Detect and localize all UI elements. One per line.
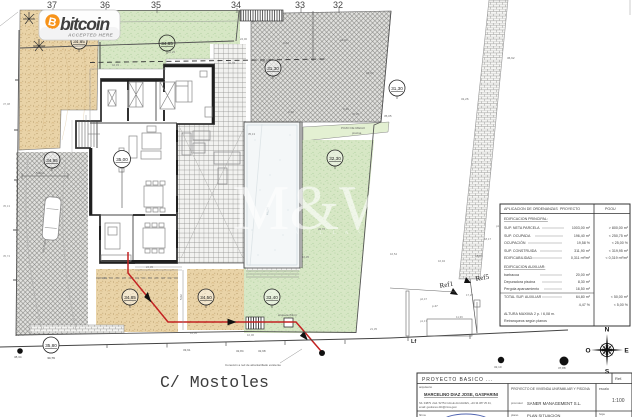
svg-text:35,13: 35,13 [3, 204, 10, 208]
svg-text:35: 35 [151, 0, 161, 10]
svg-text:< 319,95 m²: < 319,95 m² [609, 249, 629, 253]
svg-text:< 5,00 %: < 5,00 % [614, 303, 629, 307]
svg-text:PROYECTO BASICO ...: PROYECTO BASICO ... [422, 377, 493, 383]
svg-text:18,17: 18,17 [484, 237, 491, 241]
svg-text:3,40: 3,40 [343, 107, 349, 111]
svg-text:SUP. NETA PARCELA: SUP. NETA PARCELA [504, 226, 540, 230]
svg-text:email: gestiones.41b@ricos.ges: email: gestiones.41b@ricos.gest [419, 405, 457, 409]
svg-text:EDIFICACION AUXILIAR:: EDIFICACION AUXILIAR: [504, 265, 545, 269]
svg-text:32: 32 [333, 0, 343, 10]
svg-text:1003,00 m²: 1003,00 m² [572, 226, 591, 230]
svg-text:34: 34 [231, 0, 241, 10]
svg-text:35,05: 35,05 [384, 114, 392, 118]
svg-text:POZO DE RIEGO: POZO DE RIEGO [341, 126, 366, 130]
svg-text:19,58 %: 19,58 % [577, 241, 591, 245]
svg-text:Arqueta (Dim): Arqueta (Dim) [278, 313, 297, 317]
svg-text:33,91: 33,91 [183, 348, 191, 352]
svg-text:hoja: hoja [599, 412, 605, 416]
svg-text:PLAN SITUACION: PLAN SITUACION [527, 413, 560, 417]
svg-text:APLICACION DE ORDENANZAS: APLICACION DE ORDENANZAS [504, 207, 558, 211]
svg-text:16,94: 16,94 [438, 259, 445, 263]
svg-text:> 800,00 m²: > 800,00 m² [609, 226, 629, 230]
svg-text:36,92: 36,92 [507, 56, 515, 60]
svg-text:Retranqueos según planos: Retranqueos según planos [504, 319, 547, 323]
svg-text:64,80 m²: 64,80 m² [576, 295, 591, 299]
svg-text:3,40: 3,40 [288, 110, 294, 114]
svg-text:34,85: 34,85 [161, 41, 173, 46]
svg-text:18,84: 18,84 [475, 254, 483, 258]
svg-text:4,47 %: 4,47 % [579, 303, 591, 307]
svg-text:Ref5: Ref5 [475, 273, 490, 283]
svg-text:p3,04: p3,04 [340, 38, 348, 42]
svg-text:35,80: 35,80 [45, 343, 57, 348]
svg-text:3,04: 3,04 [283, 41, 289, 45]
svg-text:firma: firma [419, 413, 426, 417]
svg-text:V I L L A S: V I L L A S [295, 230, 364, 236]
svg-text:C/ Mostoles: C/ Mostoles [160, 373, 269, 392]
svg-text:SANER MANAGEMENT S.L.: SANER MANAGEMENT S.L. [527, 401, 581, 406]
svg-text:32,84: 32,84 [236, 349, 244, 353]
svg-text:Ref1: Ref1 [439, 280, 454, 290]
svg-text:36: 36 [100, 0, 110, 10]
svg-text:MARCELINO DIAZ JOSE, GASPARINI: MARCELINO DIAZ JOSE, GASPARINI [424, 392, 498, 397]
svg-text:38,34: 38,34 [14, 355, 22, 359]
svg-text:Pergola aparcamiento: Pergola aparcamiento [504, 287, 539, 291]
svg-text:SUP. CONSTRUIDA: SUP. CONSTRUIDA [504, 249, 537, 253]
svg-text:Nb. 04879 .2wb. 52751 CALLE AL: Nb. 04879 .2wb. 52751 CALLE ALCALDES, +3… [419, 401, 492, 405]
svg-text:ACCEPTED HERE: ACCEPTED HERE [67, 33, 113, 39]
svg-text:10,25: 10,25 [168, 50, 175, 54]
svg-text:2 p. / 6,08 m.: 2 p. / 6,08 m. [534, 312, 555, 316]
svg-text:35,00: 35,00 [116, 157, 128, 162]
svg-text:33: 33 [295, 0, 305, 10]
svg-text:31,26: 31,26 [461, 97, 469, 101]
svg-text:311,90 m²: 311,90 m² [574, 249, 591, 253]
svg-text:0,311 m²/m²: 0,311 m²/m² [571, 256, 591, 260]
svg-text:barbacoa: barbacoa [504, 273, 519, 277]
svg-text:plano: plano [511, 413, 519, 417]
svg-text:22,78: 22,78 [228, 61, 235, 65]
svg-text:SUP. OCUPADA: SUP. OCUPADA [504, 234, 531, 238]
svg-text:34,79: 34,79 [47, 356, 55, 360]
svg-text:16,93: 16,93 [112, 63, 119, 67]
svg-text:piscina: piscina [352, 131, 362, 135]
svg-text:31,30: 31,30 [391, 86, 403, 91]
svg-text:21,35: 21,35 [370, 327, 377, 331]
svg-text:10,05: 10,05 [302, 255, 309, 259]
svg-text:EDIFICACION PRINCIPAL:: EDIFICACION PRINCIPAL: [504, 217, 548, 221]
svg-text:34,85: 34,85 [124, 295, 136, 300]
svg-text:PROYECTO DE VIVIENDA UNIFAMILI: PROYECTO DE VIVIENDA UNIFAMILIAR Y PISCI… [511, 387, 591, 391]
svg-text:PGOU: PGOU [605, 207, 616, 211]
svg-text:33,40: 33,40 [266, 295, 278, 300]
svg-text:< 0,319 m²/m²: < 0,319 m²/m² [606, 256, 629, 260]
svg-text:1:100: 1:100 [612, 398, 625, 404]
svg-text:OCUPACIÓN: OCUPACIÓN [504, 240, 526, 245]
svg-text:Ref.: Ref. [615, 376, 622, 381]
svg-text:bitcoin: bitcoin [60, 14, 109, 34]
svg-text:10,06: 10,06 [247, 333, 254, 337]
svg-text:N: N [605, 327, 610, 334]
svg-text:12,05: 12,05 [190, 331, 197, 335]
svg-text:Lf: Lf [411, 339, 416, 345]
svg-text:32,10: 32,10 [494, 365, 502, 369]
svg-text:p2,47: p2,47 [420, 297, 427, 301]
svg-text:< 50,00 m²: < 50,00 m² [611, 295, 629, 299]
svg-text:34,50: 34,50 [200, 295, 212, 300]
svg-text:O: O [585, 348, 590, 355]
svg-text:arquitecto: arquitecto [419, 385, 433, 389]
svg-text:37,88: 37,88 [558, 366, 566, 370]
svg-text:37,08: 37,08 [3, 102, 10, 106]
svg-text:< 250,75 m²: < 250,75 m² [609, 234, 629, 238]
svg-text:Conexión a red de alcantarilla: Conexión a red de alcantarillado existen… [225, 363, 281, 367]
svg-text:26,04: 26,04 [366, 71, 374, 75]
svg-text:17,23: 17,23 [466, 293, 473, 297]
svg-text:escala: escala [599, 387, 609, 391]
svg-text:20,96: 20,96 [262, 59, 269, 63]
svg-text:PROYECTO: PROYECTO [560, 207, 580, 211]
svg-text:32,30: 32,30 [329, 156, 341, 161]
svg-text:p.47: p.47 [432, 304, 438, 308]
svg-text:24,05: 24,05 [146, 265, 153, 269]
svg-text:11,36: 11,36 [456, 315, 463, 319]
svg-text:12,01: 12,01 [100, 276, 107, 280]
svg-text:< 25,00 %: < 25,00 % [612, 241, 629, 245]
svg-text:S: S [605, 369, 610, 376]
svg-text:p1,17: p1,17 [420, 319, 427, 323]
svg-text:30,05: 30,05 [352, 112, 359, 116]
svg-text:promotor: promotor [511, 401, 523, 405]
svg-text:E: E [624, 348, 629, 355]
svg-text:35,13: 35,13 [248, 132, 255, 136]
svg-text:16,50 m²: 16,50 m² [576, 287, 591, 291]
svg-text:ALTURA MAXIMA: ALTURA MAXIMA [504, 312, 533, 316]
svg-text:16,54: 16,54 [390, 252, 397, 256]
svg-text:196,40 m²: 196,40 m² [574, 234, 591, 238]
svg-text:5,02: 5,02 [179, 294, 183, 300]
svg-text:Depuradora piscina: Depuradora piscina [504, 280, 535, 284]
svg-text:31,30: 31,30 [267, 66, 279, 71]
svg-text:EDIFICABILIDAD: EDIFICABILIDAD [504, 256, 533, 260]
svg-text:5,00m: 5,00m [36, 171, 45, 175]
svg-text:20,00 m²: 20,00 m² [576, 273, 591, 277]
svg-text:TOTAL SUP. AUXILIAR: TOTAL SUP. AUXILIAR [504, 295, 542, 299]
svg-text:24,00: 24,00 [240, 37, 247, 41]
svg-text:8,30 m²: 8,30 m² [578, 280, 591, 284]
svg-text:37: 37 [47, 0, 57, 10]
svg-text:35,74: 35,74 [3, 254, 10, 258]
svg-text:32,98: 32,98 [258, 349, 266, 353]
svg-text:34,95: 34,95 [46, 158, 58, 163]
